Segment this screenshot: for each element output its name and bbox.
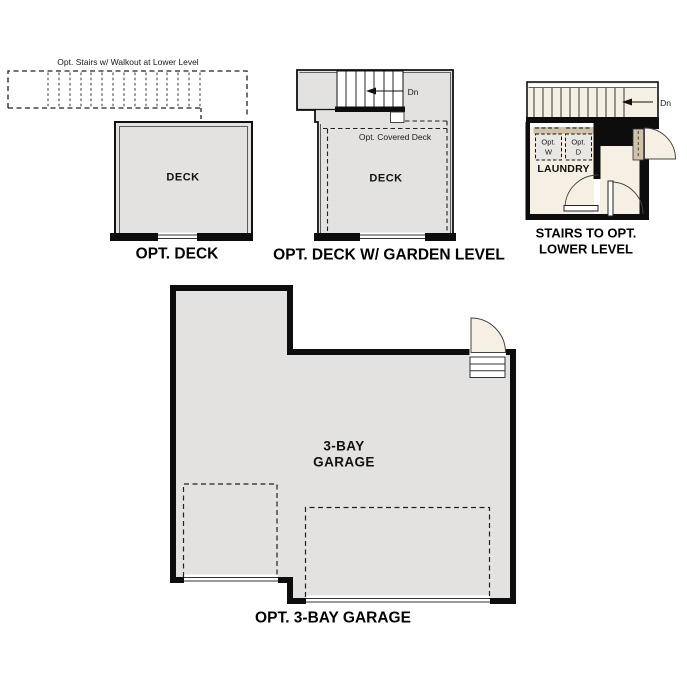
garden-stairs-bottom-wall bbox=[335, 107, 405, 113]
garden-level-diagram bbox=[297, 70, 456, 242]
laundry-room-label: LAUNDRY bbox=[537, 163, 589, 174]
garage-room-label-line2: GARAGE bbox=[313, 455, 375, 469]
garage-entry-steps bbox=[470, 357, 505, 378]
opt-stairs-dashed-outline bbox=[8, 71, 247, 117]
garage-door-opening-main bbox=[306, 596, 490, 606]
garage-caption: OPT. 3-BAY GARAGE bbox=[255, 610, 411, 626]
deck-door-opening bbox=[158, 233, 197, 242]
garden-deck-wall-left bbox=[314, 233, 360, 241]
garage-entry-door-swing bbox=[471, 318, 506, 353]
laundry-door-leaf bbox=[564, 206, 598, 212]
covered-deck-note: Opt. Covered Deck bbox=[359, 133, 431, 142]
exterior-door-swing bbox=[645, 128, 676, 159]
garage-door-opening-left bbox=[184, 575, 278, 586]
deck2-room-label: DECK bbox=[369, 174, 402, 185]
deck1-room-label: DECK bbox=[166, 173, 199, 184]
down-label-lower: Dn bbox=[660, 98, 671, 107]
down-label-garden: Dn bbox=[408, 87, 419, 96]
garden-level-caption: OPT. DECK W/ GARDEN LEVEL bbox=[273, 247, 505, 263]
garage-room-label-line1: 3-BAY bbox=[323, 439, 364, 453]
dryer-label-line1: Opt. bbox=[571, 138, 585, 146]
washer-label-line2: W bbox=[545, 148, 552, 156]
washer-label-line1: Opt. bbox=[541, 138, 555, 146]
dryer-label-line2: D bbox=[576, 148, 581, 156]
floor-plan-sheet: Opt. Stairs w/ Walkout at Lower Level DE… bbox=[0, 0, 687, 687]
floor-plan-linework bbox=[0, 0, 687, 687]
opt-deck-caption: OPT. DECK bbox=[136, 246, 219, 262]
garden-stairs-landing-notch bbox=[391, 112, 405, 123]
lower-level-caption-line1: STAIRS TO OPT. bbox=[536, 227, 637, 240]
opt-stairs-treads bbox=[48, 73, 200, 108]
stairs-walkout-note: Opt. Stairs w/ Walkout at Lower Level bbox=[57, 58, 198, 67]
lower-level-caption-line2: LOWER LEVEL bbox=[539, 243, 633, 256]
garden-deck-door-opening bbox=[360, 233, 425, 242]
garden-deck-wall-right bbox=[425, 233, 456, 241]
hall-door-leaf bbox=[608, 181, 613, 216]
opt-deck-diagram bbox=[8, 71, 253, 242]
deck-wall-left bbox=[110, 233, 158, 241]
deck-wall-right bbox=[197, 233, 253, 241]
